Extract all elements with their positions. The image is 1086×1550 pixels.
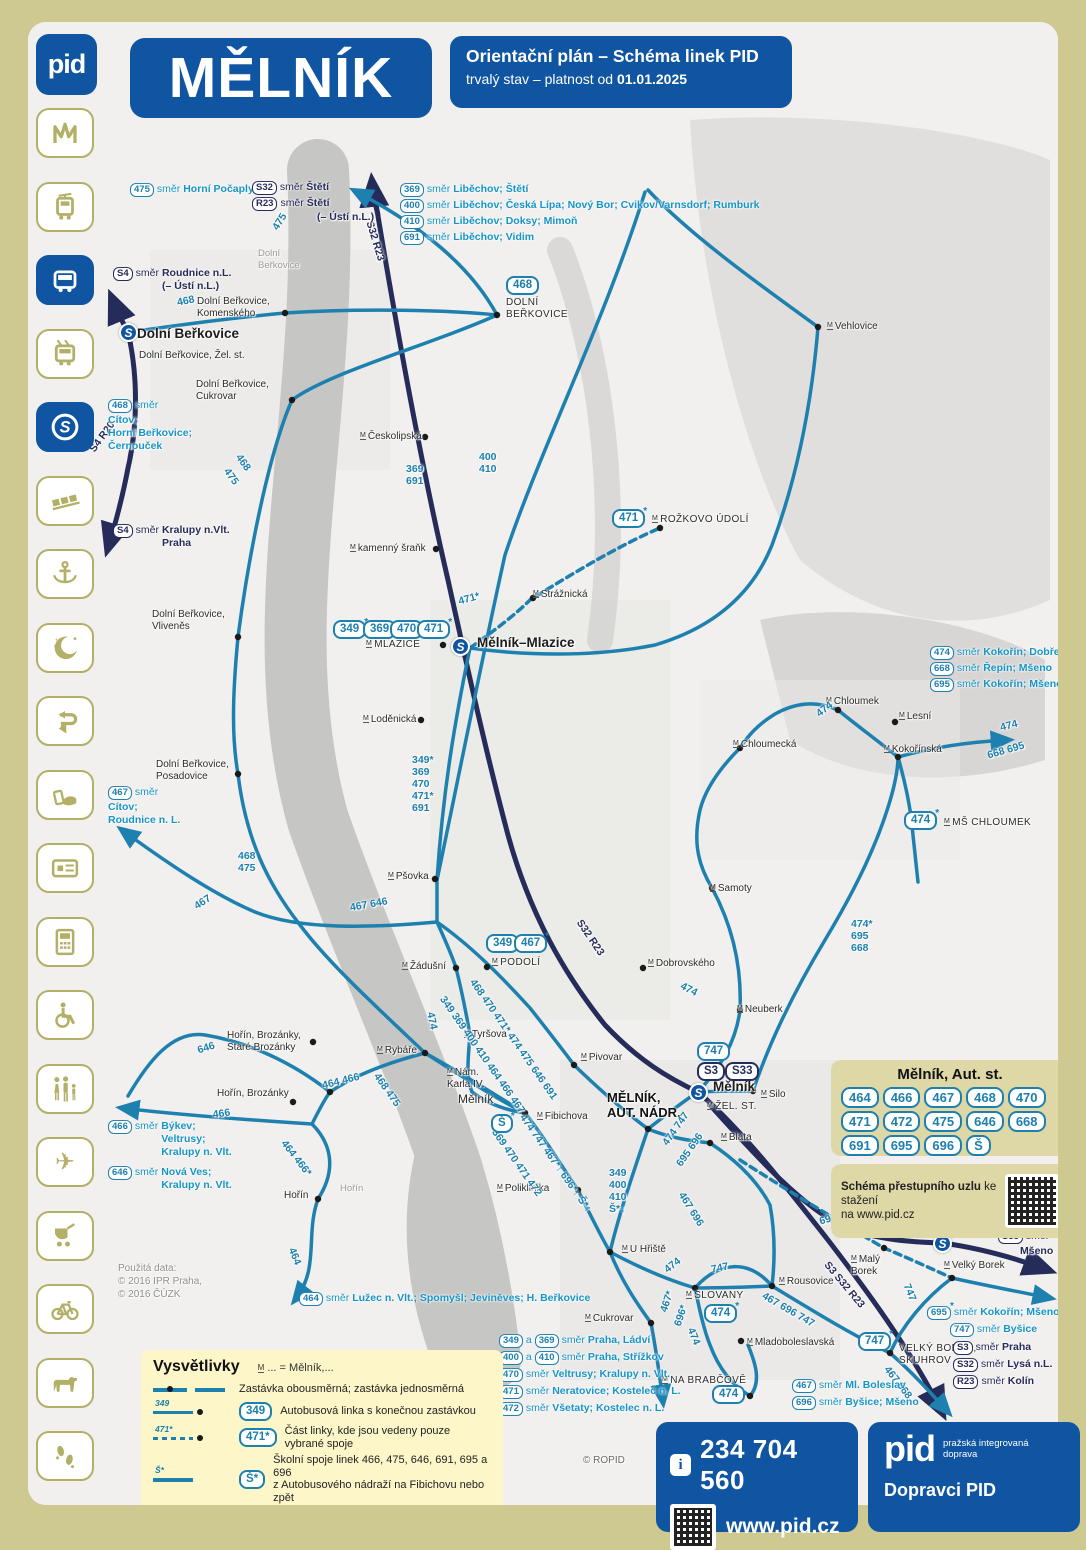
- ticket-hand-icon: [36, 770, 94, 820]
- stop-dot: [692, 1285, 698, 1291]
- dog-icon: [48, 1368, 82, 1398]
- train-s-icon: S: [48, 412, 82, 442]
- stop-dot: [494, 312, 500, 318]
- stop-dot: [769, 1283, 775, 1289]
- map-canvas: [28, 22, 1058, 1505]
- legend-row-bus-line: 349 349 Autobusová linka s konečnou zast…: [153, 1402, 491, 1421]
- bus-icon: [36, 255, 94, 305]
- stop-dot: [738, 1338, 744, 1344]
- stop-dot: [315, 1196, 321, 1202]
- footer-qr-code: [670, 1504, 716, 1550]
- aut-st-badges: 464466467*468470471472475646668691695696…: [839, 1087, 1058, 1156]
- stop-dot: [235, 771, 241, 777]
- airplane-icon: ✈: [48, 1147, 82, 1177]
- schema-url: na www.pid.cz: [841, 1209, 915, 1221]
- night-icon: [48, 633, 82, 663]
- legend-symbol-partial-line: 471*: [153, 1429, 231, 1447]
- chip-card-icon: [36, 843, 94, 893]
- stop-dot: [422, 1050, 428, 1056]
- stop-dot: [432, 876, 438, 882]
- city-title: MĚLNÍK: [169, 45, 393, 111]
- wheelchair-icon: [48, 1000, 82, 1030]
- ticket-hand-icon: [48, 780, 82, 810]
- legend-text: Část linky, kde jsou vedeny pouze vybran…: [285, 1425, 491, 1450]
- aut-st-route-badge: 466: [883, 1087, 921, 1108]
- stop-dot: [709, 885, 715, 891]
- stop-dot: [657, 525, 663, 531]
- night-icon: [36, 623, 94, 673]
- stop-dot: [235, 634, 241, 640]
- stop-dot: [530, 595, 536, 601]
- stop-dot: [327, 1089, 333, 1095]
- aut-st-title: Mělník, Aut. st.: [839, 1066, 1058, 1083]
- operators-box: pid pražská integrovaná doprava Dopravci…: [868, 1422, 1080, 1532]
- operators-label: Dopravci PID: [884, 1480, 1064, 1501]
- stop-dot: [750, 1088, 756, 1094]
- aut-st-route-badge: 668: [1008, 1111, 1046, 1132]
- svg-text:S: S: [60, 419, 71, 437]
- stop-dot: [282, 310, 288, 316]
- tram-icon: [48, 192, 82, 222]
- stop-dot: [892, 719, 898, 725]
- stop-dot: [737, 745, 743, 751]
- stop-dot: [290, 1099, 296, 1105]
- website-url: www.pid.cz: [726, 1515, 840, 1539]
- aut-st-route-badge: 471: [841, 1111, 879, 1132]
- stop-dot: [440, 642, 446, 648]
- aut-st-route-badge: 691: [841, 1135, 879, 1156]
- wheelchair-icon: [36, 990, 94, 1040]
- legend-symbol-school: Š*: [153, 1470, 231, 1488]
- aut-st-route-badge: 464: [841, 1087, 879, 1108]
- stop-dot: [467, 1032, 473, 1038]
- map-sheet: Dolní BeřkoviceDolní Beřkovice, Komenské…: [28, 22, 1058, 1505]
- stop-dot: [422, 434, 428, 440]
- stop-dot: [645, 1126, 651, 1132]
- schema-qr-code: [1005, 1174, 1058, 1228]
- stop-dot: [707, 1140, 713, 1146]
- legend-row-stops: Zastávka obousměrná; zastávka jednosměrn…: [153, 1380, 491, 1398]
- stop-dot: [895, 754, 901, 760]
- stop-dot: [453, 965, 459, 971]
- pram-icon: [36, 1211, 94, 1261]
- aut-st-box: Mělník, Aut. st. 464466467*4684704714724…: [831, 1060, 1058, 1156]
- aut-st-route-badge: 472: [883, 1111, 921, 1132]
- stop-dot: [815, 324, 821, 330]
- aut-st-route-badge: 696: [924, 1135, 962, 1156]
- legend-text: Školní spoje linek 466, 475, 646, 691, 6…: [273, 1454, 491, 1504]
- stop-dot: [433, 546, 439, 552]
- footprints-icon: [36, 1431, 94, 1481]
- schema-text-bold: Schéma přestupního uzlu: [841, 1181, 981, 1193]
- phone-number: 234 704 560: [700, 1434, 844, 1496]
- bicycle-icon: [48, 1294, 82, 1324]
- stop-dot: [522, 1110, 528, 1116]
- chip-card-icon: [48, 853, 82, 883]
- ticket-machine-icon: [48, 927, 82, 957]
- airplane-icon: ✈: [36, 1137, 94, 1187]
- dog-icon: [36, 1358, 94, 1408]
- family-icon: [48, 1074, 82, 1104]
- subtitle-line2: trvalý stav – platnost od 01.01.2025: [466, 71, 776, 87]
- trolleybus-icon: [48, 339, 82, 369]
- stop-dot: [289, 397, 295, 403]
- family-icon: [36, 1064, 94, 1114]
- stop-dot: [648, 1320, 654, 1326]
- schema-text: Schéma přestupního uzlu ke stažení na ww…: [841, 1180, 997, 1222]
- stop-dot: [571, 1062, 577, 1068]
- aut-st-route-badge: 646: [966, 1111, 1004, 1132]
- legend-title: Vysvětlivky: [153, 1358, 240, 1376]
- stop-dot: [887, 1350, 893, 1356]
- aut-st-route-badge: 468: [966, 1087, 1004, 1108]
- aut-st-badge-row: 464466467*468470: [841, 1087, 1058, 1108]
- aut-st-route-badge: 475: [924, 1111, 962, 1132]
- aut-st-badge-row: 471472475646668: [841, 1111, 1058, 1132]
- stop-dot: [575, 1187, 581, 1193]
- ferry-icon: [48, 559, 82, 589]
- contact-box: i 234 704 560 www.pid.cz: [656, 1422, 858, 1532]
- legend-symbol-stops: [153, 1380, 231, 1398]
- stop-dot: [607, 1249, 613, 1255]
- legend-badge-349: 349: [239, 1402, 272, 1421]
- aut-st-route-badge: 467*: [924, 1087, 962, 1108]
- legend-m-note: M ... = Mělník,...: [258, 1362, 334, 1374]
- legend-box: Vysvětlivky M ... = Mělník,... Zastávka …: [141, 1350, 503, 1505]
- stop-dot: [310, 1039, 316, 1045]
- legend-badge-471: 471*: [239, 1428, 277, 1447]
- stop-dot: [835, 707, 841, 713]
- funicular-icon: [36, 476, 94, 526]
- validity-date: 01.01.2025: [617, 71, 687, 87]
- ticket-machine-icon: [36, 917, 94, 967]
- bicycle-icon: [36, 1284, 94, 1334]
- trolleybus-icon: [36, 329, 94, 379]
- bus-icon: [48, 265, 82, 295]
- info-icon: i: [670, 1454, 691, 1476]
- metro-icon: [36, 108, 94, 158]
- page-frame: Dolní BeřkoviceDolní Beřkovice, Komenské…: [0, 0, 1086, 1536]
- pram-icon: [48, 1221, 82, 1251]
- aut-st-route-badge: 470: [1008, 1087, 1046, 1108]
- stop-dot: [909, 823, 915, 829]
- footprints-icon: [48, 1441, 82, 1471]
- subtitle-line1: Orientační plán – Schéma linek PID: [466, 46, 776, 67]
- pid-logo: pid: [36, 34, 97, 95]
- aut-st-badge-row: 691695696Š*: [841, 1135, 1058, 1156]
- metro-icon: [48, 118, 82, 148]
- stop-dot: [418, 717, 424, 723]
- transfer-icon: [48, 706, 82, 736]
- pid-subtitle: pražská integrovaná doprava: [943, 1438, 1029, 1460]
- stop-dot: [747, 1393, 753, 1399]
- legend-row-school: Š* Š* Školní spoje linek 466, 475, 646, …: [153, 1454, 491, 1504]
- legend-symbol-bus-line: 349: [153, 1403, 231, 1421]
- stop-dot: [737, 1007, 743, 1013]
- funicular-icon: [48, 486, 82, 516]
- subtitle-box: Orientační plán – Schéma linek PID trval…: [450, 36, 792, 108]
- legend-text: Autobusová linka s konečnou zastávkou: [280, 1405, 476, 1418]
- svg-text:✈: ✈: [55, 1149, 75, 1176]
- ferry-icon: [36, 549, 94, 599]
- stop-dot: [484, 964, 490, 970]
- schema-box: Schéma přestupního uzlu ke stažení na ww…: [831, 1164, 1058, 1238]
- legend-text: Zastávka obousměrná; zastávka jednosměrn…: [239, 1383, 464, 1396]
- aut-st-route-badge: 695: [883, 1135, 921, 1156]
- legend-row-partial-line: 471* 471* Část linky, kde jsou vedeny po…: [153, 1425, 491, 1450]
- legend-badge-school: Š*: [239, 1470, 265, 1489]
- stop-dot: [640, 965, 646, 971]
- transfer-icon: [36, 696, 94, 746]
- stop-dot: [881, 1245, 887, 1251]
- page-title: MĚLNÍK: [130, 38, 432, 118]
- train-s-icon: S: [36, 402, 94, 452]
- pid-wordmark: pid: [884, 1432, 935, 1466]
- tram-icon: [36, 182, 94, 232]
- stop-dot: [949, 1275, 955, 1281]
- aut-st-route-badge: Š*: [966, 1135, 991, 1156]
